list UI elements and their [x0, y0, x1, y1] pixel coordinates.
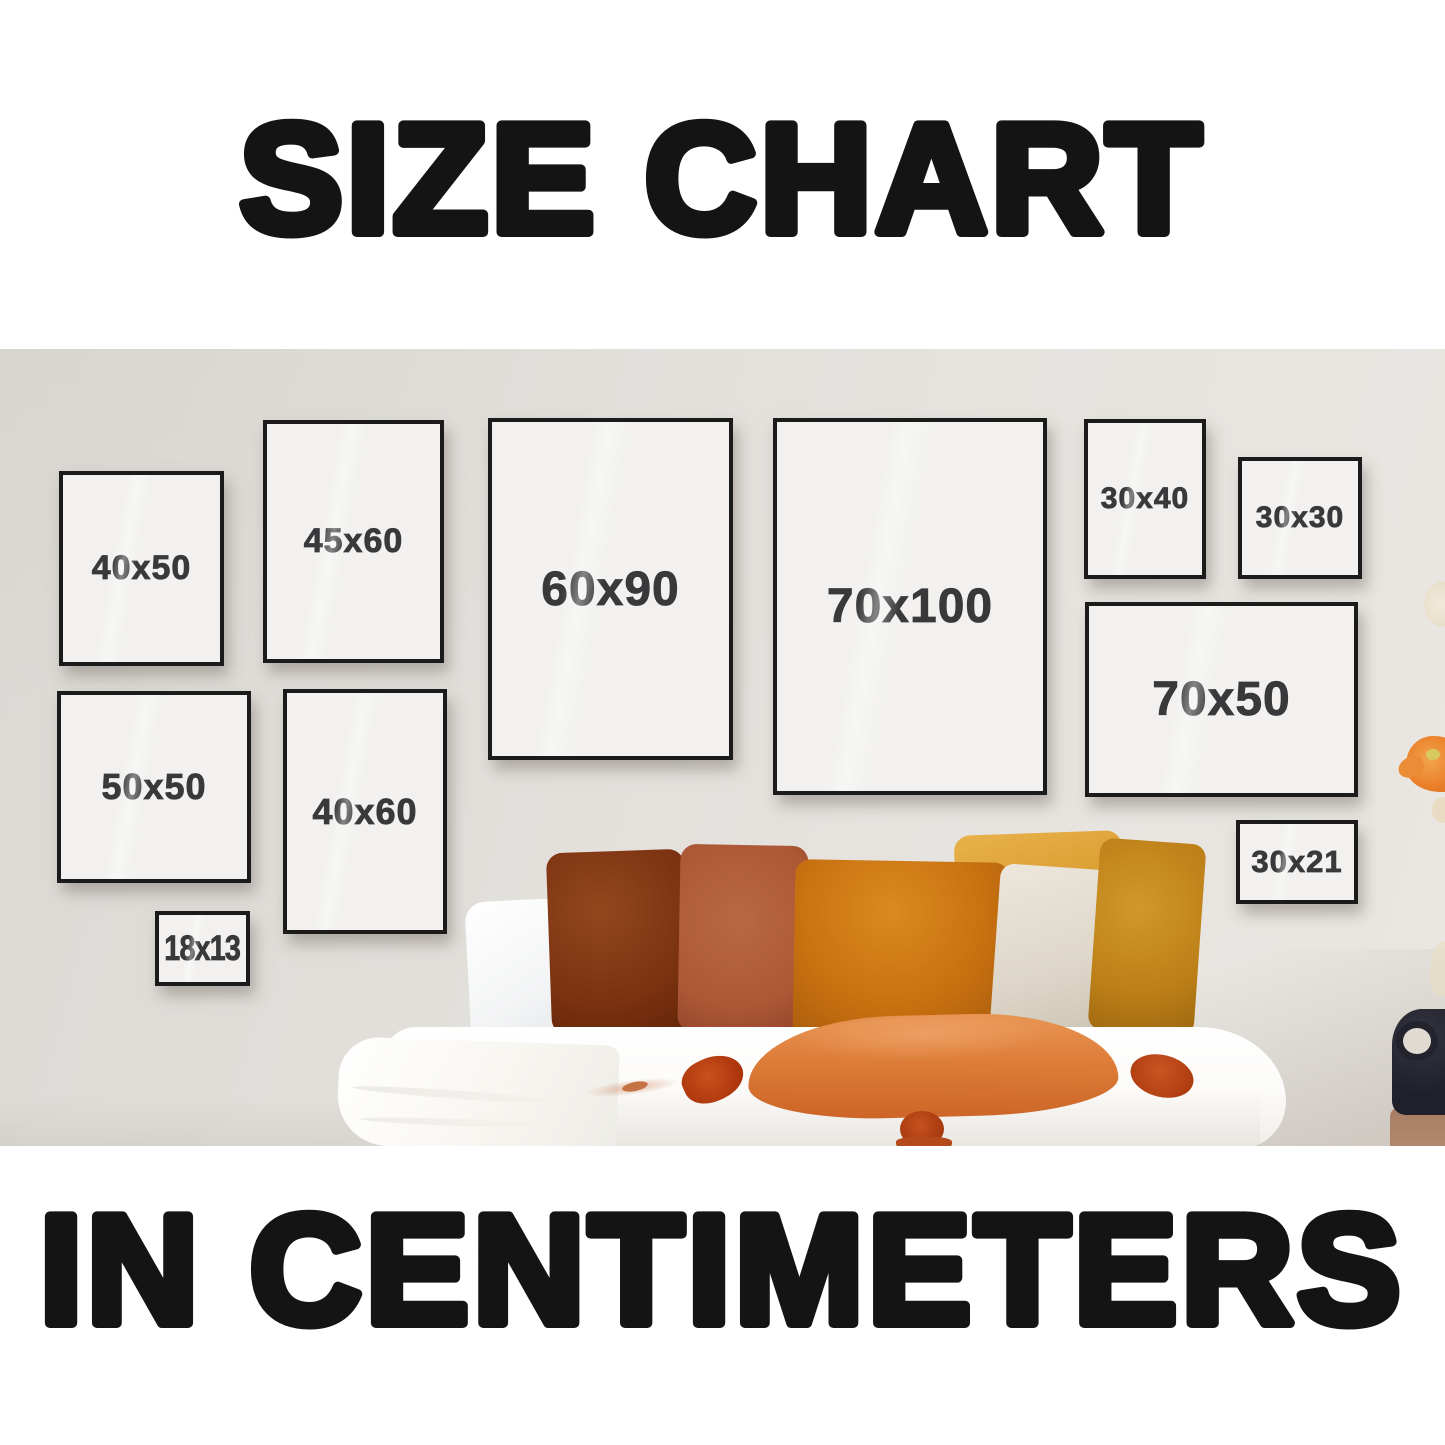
svg-text:IN CENTIMETERS: IN CENTIMETERS [40, 1183, 1405, 1356]
svg-text:SIZE CHART: SIZE CHART [240, 92, 1205, 265]
